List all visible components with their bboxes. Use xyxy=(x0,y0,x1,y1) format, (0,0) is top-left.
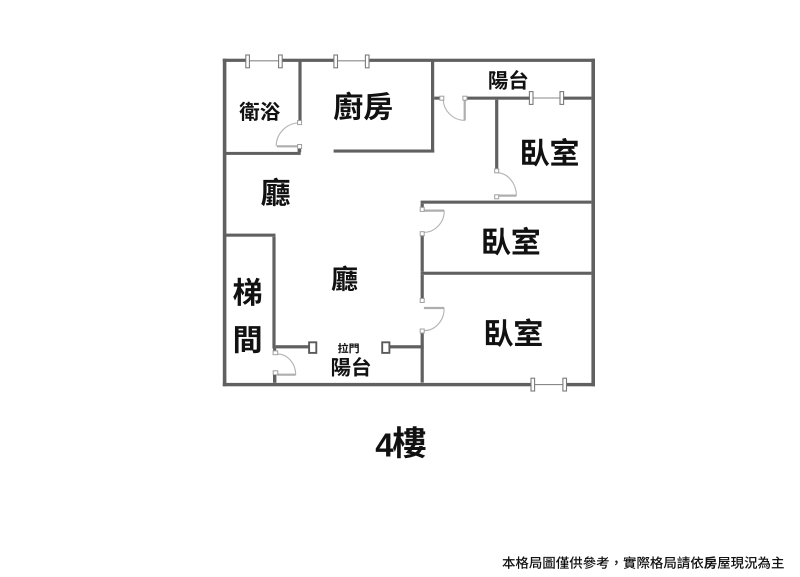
svg-text:4: 4 xyxy=(375,427,394,464)
